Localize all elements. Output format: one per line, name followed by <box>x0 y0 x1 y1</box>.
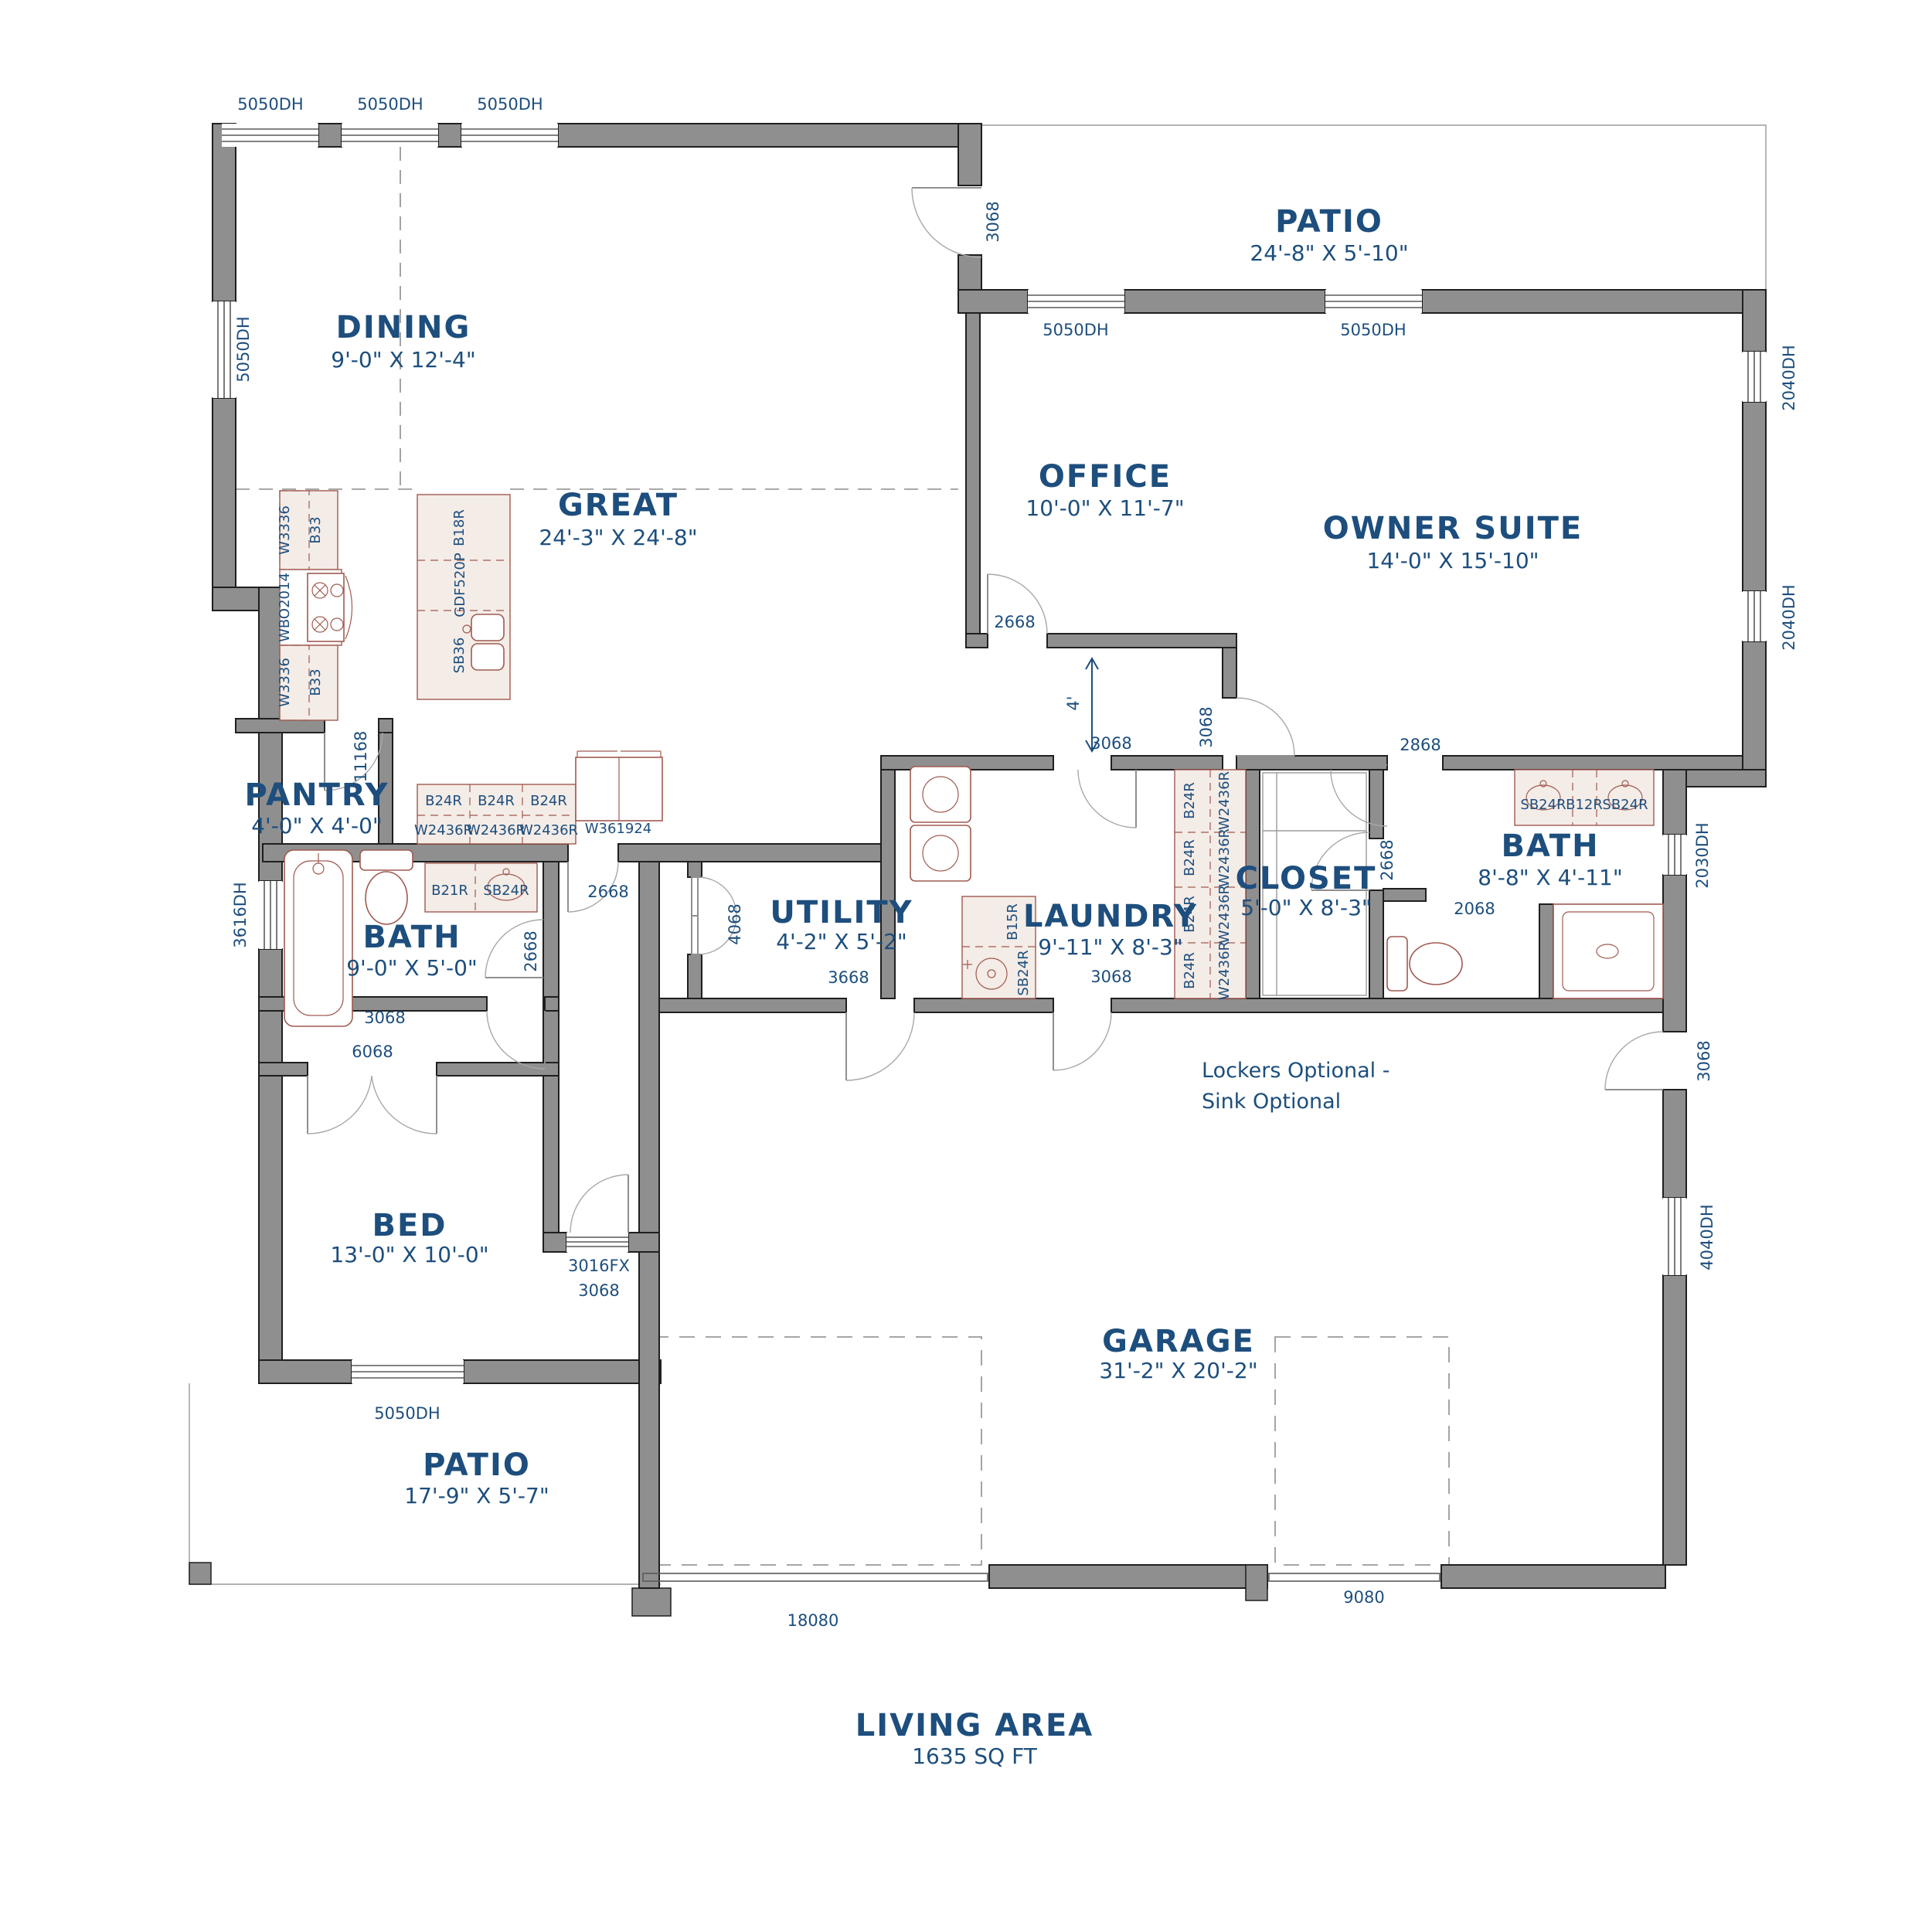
room-dims-label: 9'-11" X 8'-3" <box>1038 934 1182 960</box>
cabinet-label: W2436R <box>1216 828 1233 887</box>
room-dims-label: 1635 SQ FT <box>912 1743 1037 1769</box>
room-name-label: OWNER SUITE <box>1323 511 1583 546</box>
door-laundry-south-3068 <box>1053 1012 1111 1070</box>
opening-label: 2868 <box>1400 736 1440 754</box>
door-entry-3068 <box>570 1175 628 1233</box>
cabinet-label: WBO2014 <box>277 573 293 642</box>
window-3016fx-entry <box>566 1233 628 1252</box>
cabinet-label: B12R <box>1566 797 1603 813</box>
door-garage-side-3068 <box>1605 1032 1663 1090</box>
opening-label: 18080 <box>787 1611 839 1630</box>
room-name-label: GARAGE <box>1102 1324 1255 1359</box>
room-name-label: PATIO <box>423 1447 531 1483</box>
toilet-bath-fixture <box>360 850 413 924</box>
room-name-label: CLOSET <box>1236 861 1377 896</box>
window-2030dh-bath <box>1663 835 1686 875</box>
door-bed-closet-6068 <box>308 1076 437 1134</box>
opening-label: 5050DH <box>1043 321 1108 339</box>
opening-label: 2030DH <box>1693 822 1712 888</box>
opening-label: 3068 <box>1090 734 1131 753</box>
room-dims-label: 24'-3" X 24'-8" <box>539 525 697 550</box>
cabinet-label: SB24R <box>1520 797 1566 813</box>
door-laundry-north-3068 <box>1078 770 1136 828</box>
window-2040dh-owner-1 <box>1743 352 1766 402</box>
toilet-owner-fixture <box>1387 937 1462 991</box>
opening-label: 5050DH <box>374 1404 440 1423</box>
opening-label: 5050DH <box>234 316 253 382</box>
floor-plan-canvas: DINING9'-0" X 12'-4"GREAT24'-3" X 24'-8"… <box>0 0 1932 1932</box>
opening-label: 2668 <box>522 930 540 971</box>
cabinet-label: W3336 <box>277 505 293 555</box>
room-name-label: LAUNDRY <box>1023 899 1198 934</box>
opening-label: 4068 <box>726 903 744 944</box>
cabinet-label: SB36 <box>451 638 468 674</box>
cabinet-label: W2436R <box>519 822 578 838</box>
opening-label: 2668 <box>587 883 628 901</box>
window-5050dh-office <box>1028 290 1124 313</box>
room-name-label: OFFICE <box>1039 459 1172 495</box>
opening-label: 5050DH <box>237 95 303 114</box>
opening-label: 9080 <box>1343 1588 1384 1607</box>
cabinet-label: B24R <box>1182 839 1198 876</box>
cabinet-label: W2436R <box>1216 771 1233 830</box>
cabinet-label: W2436R <box>1216 941 1233 1000</box>
opening-label: 3016FX <box>568 1257 630 1275</box>
window-5050dh-bed-bottom <box>352 1360 464 1383</box>
cabinet-label: B24R <box>425 793 462 809</box>
room-dims-label: 13'-0" X 10'-0" <box>330 1242 488 1267</box>
opening-label: 3068 <box>1695 1040 1713 1081</box>
opening-label: 3668 <box>828 968 869 987</box>
room-name-label: UTILITY <box>770 895 913 930</box>
garage-door-18080 <box>643 1573 988 1581</box>
room-dims-label: 4'-0" X 4'-0" <box>251 813 383 838</box>
opening-label: 5050DH <box>357 95 423 114</box>
room-dims-label: 4'-2" X 5'-2" <box>776 929 907 954</box>
shower-fixture <box>1553 904 1663 998</box>
opening-label: 5050DH <box>477 95 543 114</box>
door-bed-3068 <box>487 1011 545 1069</box>
room-name-label: DINING <box>336 310 471 345</box>
range-fixture <box>308 573 352 641</box>
bathtub-fixture <box>284 850 352 1026</box>
room-name-label: BED <box>372 1208 447 1243</box>
cabinet-label: W2436R <box>1216 885 1233 944</box>
cabinet-label: B24R <box>530 793 567 809</box>
door-owner-3068 <box>1236 698 1294 756</box>
room-dims-label: 31'-2" X 20'-2" <box>1099 1358 1257 1383</box>
opening-label: 3616DH <box>231 882 250 947</box>
room-dims-label: 5'-0" X 8'-3" <box>1240 895 1372 920</box>
room-dims-label: 14'-0" X 15'-10" <box>1366 548 1539 573</box>
window-3616dh-bath-left <box>259 881 282 949</box>
cabinet-label: B15R <box>1005 903 1021 940</box>
room-dims-label: 24'-8" X 5'-10" <box>1250 240 1408 266</box>
window-5050dh-owner <box>1325 290 1422 313</box>
cabinet-label: W2436R <box>467 822 526 838</box>
window-5050dh-top-3 <box>461 124 558 147</box>
garage-door-9080 <box>1269 1573 1440 1581</box>
opening-label: 11168 <box>352 731 370 783</box>
room-dims-label: 9'-0" X 12'-4" <box>331 347 475 372</box>
optional-note-text: Lockers Optional - <box>1202 1059 1389 1083</box>
room-dims-label: 10'-0" X 11'-7" <box>1026 495 1184 521</box>
window-2040dh-owner-2 <box>1743 591 1766 641</box>
room-dims-label: 9'-0" X 5'-0" <box>346 955 478 981</box>
opening-label: 4040DH <box>1698 1204 1716 1270</box>
cabinet-label: SB24R <box>483 883 529 899</box>
opening-label: 3068 <box>364 1009 405 1027</box>
window-5050dh-top-2 <box>342 124 438 147</box>
cabinet-label: B21R <box>431 883 468 899</box>
washer-fixture <box>910 767 971 822</box>
cabinet-label: W3336 <box>277 658 293 707</box>
opening-label: 5050DH <box>1340 321 1406 339</box>
garage-bay-outlines <box>653 1337 1449 1565</box>
cabinet-label: B24R <box>1182 952 1198 989</box>
room-name-label: BATH <box>362 920 461 955</box>
cabinet-label: B18R <box>451 509 468 546</box>
room-dims-label: 8'-8" X 4'-11" <box>1478 865 1622 890</box>
dryer-fixture <box>910 825 971 881</box>
opening-label: 3068 <box>1197 706 1216 747</box>
cabinet-label: B24R <box>1182 896 1198 933</box>
room-name-label: BATH <box>1501 828 1599 864</box>
opening-label: 3068 <box>984 201 1002 242</box>
cabinet-label: GDF520P <box>452 553 468 617</box>
window-5050dh-top-1 <box>222 124 318 147</box>
cabinet-label: SB24R <box>1015 950 1032 995</box>
opening-label: 2040DH <box>1780 584 1798 650</box>
window-4040dh-garage <box>1663 1198 1686 1275</box>
room-dims-label: 17'-9" X 5'-7" <box>404 1483 549 1509</box>
opening-label: 6068 <box>352 1043 393 1061</box>
opening-label: 2040DH <box>1780 345 1798 410</box>
opening-label: 4' <box>1064 696 1083 710</box>
room-name-label: GREAT <box>558 488 679 523</box>
refrigerator-fixture <box>576 751 662 821</box>
cabinet-label: SB24R <box>1602 797 1648 813</box>
door-patio-3068 <box>912 188 981 257</box>
window-5050dh-dining-left <box>213 301 236 398</box>
cabinet-label: B24R <box>478 793 515 809</box>
opening-label: 3068 <box>578 1281 619 1300</box>
cabinet-label: B33 <box>308 668 324 696</box>
cabinet-label: W361924 <box>585 821 652 837</box>
room-name-label: LIVING AREA <box>855 1708 1094 1743</box>
door-utility-3668 <box>846 1012 914 1080</box>
opening-label: 3068 <box>1090 968 1131 986</box>
cabinet-label: B33 <box>308 516 324 543</box>
opening-label: 2668 <box>1378 839 1396 880</box>
opening-label: 2668 <box>994 613 1035 631</box>
room-name-label: PATIO <box>1275 204 1383 240</box>
cabinet-label: B24R <box>1182 782 1198 819</box>
optional-note-text: Sink Optional <box>1202 1090 1341 1114</box>
opening-label: 2068 <box>1454 900 1495 918</box>
cabinet-label: W2436R <box>414 822 473 838</box>
floor-plan-page: DINING9'-0" X 12'-4"GREAT24'-3" X 24'-8"… <box>0 0 1932 1932</box>
